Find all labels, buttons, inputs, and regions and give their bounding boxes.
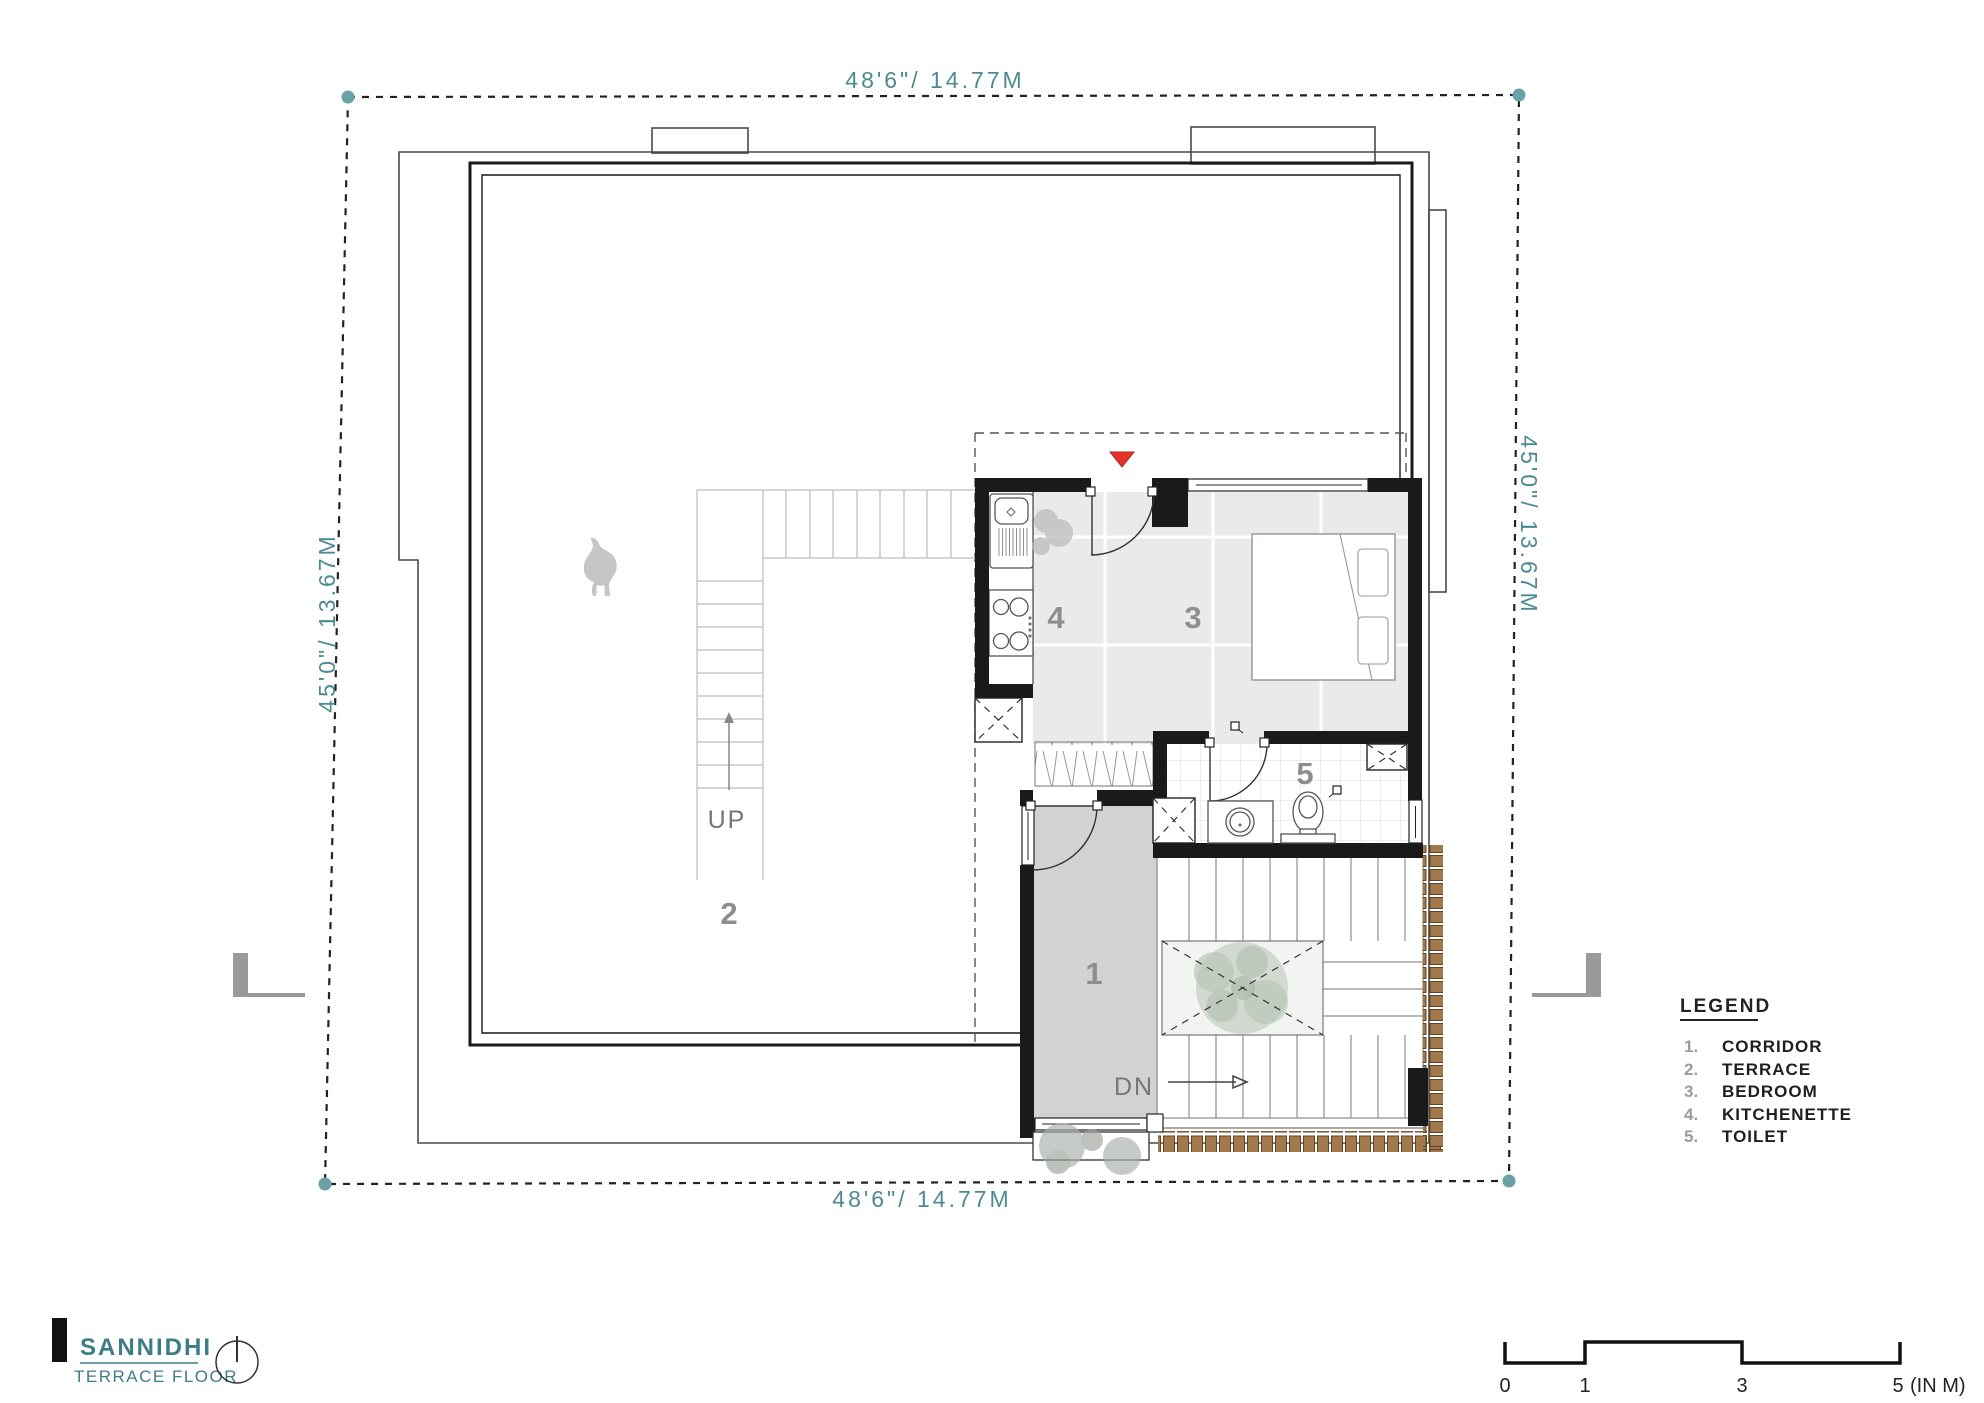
sunshade-projection <box>1429 210 1446 592</box>
window-corridor-west <box>1022 806 1034 865</box>
wardrobe <box>1035 742 1153 786</box>
washbasin-counter <box>1208 801 1273 843</box>
scale-unit: (IN M) <box>1910 1375 1966 1397</box>
kitchen-sink <box>990 494 1033 568</box>
boundary-corner-dot <box>1503 1175 1516 1188</box>
scale-tick: 1 <box>1579 1375 1590 1397</box>
boundary-corner-dot <box>342 91 355 104</box>
room-label-kitchenette: 4 <box>1047 600 1065 635</box>
up-arrow-icon <box>724 712 734 790</box>
entry-marker-icon <box>1110 452 1134 467</box>
column-hatched <box>1367 744 1407 770</box>
brick-strip-bottom <box>1158 1131 1443 1152</box>
scale-tick: 3 <box>1736 1375 1747 1397</box>
pillow <box>1358 549 1388 596</box>
gas-stove <box>989 590 1033 656</box>
dimension-bottom: 48'6"/ 14.77M <box>832 1186 1011 1212</box>
title-block: SANNIDHI TERRACE FLOOR <box>52 1318 258 1386</box>
legend: LEGEND 1.CORRIDOR 2.TERRACE 3.BEDROOM 4.… <box>1680 996 1852 1146</box>
dimension-top: 48'6"/ 14.77M <box>845 67 1024 93</box>
boundary-corner-dot <box>1513 89 1526 102</box>
room-label-corridor: 1 <box>1085 956 1102 991</box>
legend-item: 4.KITCHENETTE <box>1684 1105 1852 1124</box>
dog-silhouette <box>584 538 617 596</box>
dimension-right: 45'0"/ 13.67M <box>1516 435 1542 614</box>
column-hatched <box>1153 798 1195 843</box>
planter-box <box>1033 1123 1149 1175</box>
legend-item: 2.TERRACE <box>1684 1060 1811 1079</box>
staircase-down <box>1157 857 1423 1128</box>
floor-title: TERRACE FLOOR <box>74 1367 238 1386</box>
legend-header: LEGEND <box>1680 996 1771 1017</box>
section-marker-right <box>1532 953 1601 997</box>
title-bar-mark <box>52 1318 67 1362</box>
column-hatched <box>975 698 1022 742</box>
stair-up-label: UP <box>708 806 747 834</box>
stair-down-label: DN <box>1114 1073 1154 1101</box>
window-bedroom-north <box>1188 479 1368 491</box>
terrace-floor-plan-drawing: 48'6"/ 14.77M 48'6"/ 14.77M 45'0"/ 13.67… <box>0 0 1984 1403</box>
jamb-column <box>1147 1114 1163 1132</box>
room-label-terrace: 2 <box>720 896 737 931</box>
legend-item: 1.CORRIDOR <box>1684 1037 1823 1056</box>
pillow <box>1358 617 1388 664</box>
bed <box>1252 534 1395 680</box>
scale-tick: 0 <box>1499 1375 1510 1397</box>
room-label-toilet: 5 <box>1296 756 1313 791</box>
legend-item: 3.BEDROOM <box>1684 1082 1818 1101</box>
boundary-corner-dot <box>319 1178 332 1191</box>
scale-tick: 5 <box>1892 1375 1903 1397</box>
project-title: SANNIDHI <box>80 1334 212 1361</box>
floor-plan-sheet: 48'6"/ 14.77M 48'6"/ 14.77M 45'0"/ 13.67… <box>0 0 1984 1403</box>
staircase-up: UP <box>697 490 975 880</box>
dimension-left: 45'0"/ 13.67M <box>314 533 340 712</box>
section-marker-left <box>233 953 305 997</box>
room-label-bedroom: 3 <box>1184 600 1201 635</box>
scale-bar: 0 1 3 5 (IN M) <box>1499 1342 1965 1397</box>
legend-item: 5.TOILET <box>1684 1127 1788 1146</box>
window-toilet-east <box>1409 800 1422 843</box>
